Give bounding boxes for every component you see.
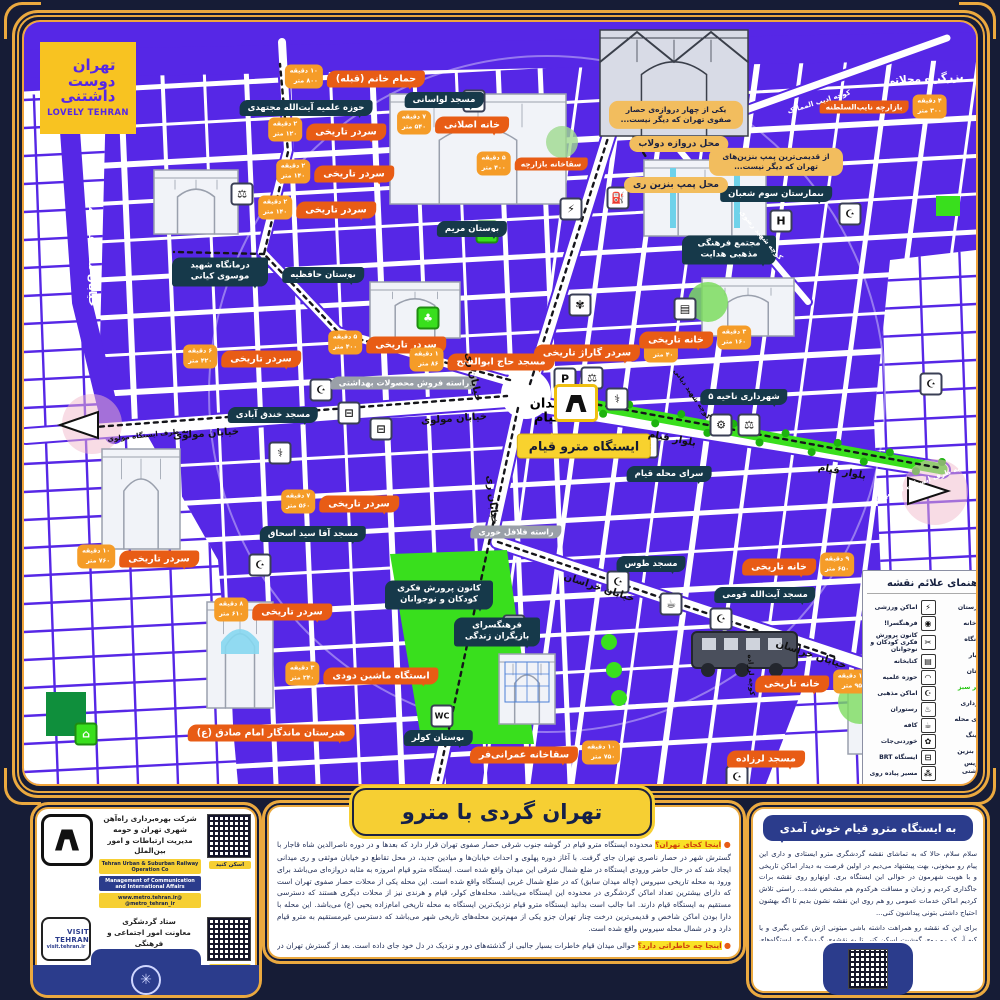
legend-label: اماکن مذهبی — [877, 690, 917, 697]
legend-item: ♨رستوران — [867, 702, 936, 717]
label-masjed-tus: مسجد طوس — [617, 556, 686, 572]
time-distance-chip: ۶ دقیقه۴۲۰ متر — [183, 345, 217, 369]
welcome-header: به ایستگاه مترو قیام خوش آمدی — [763, 815, 973, 841]
label-saqqakhane-bazaarche: سقاخانه بازارچه۵ دقیقه۴۰۰ متر — [515, 158, 588, 171]
walk-minutes: ۱۰ دقیقه — [587, 743, 615, 753]
label-masjed-lorzadeh: مسجد لرزاده — [727, 751, 805, 768]
walk-meters: ۴۲۰ متر — [188, 356, 212, 366]
legend-item: ✿خوردنی‌جات — [867, 734, 936, 749]
walk-minutes: ۱۰ دقیقه — [290, 67, 318, 77]
tourism-hq: ستاد گردشگری — [97, 917, 201, 928]
welcome-paragraph-2: برای این که نقشه رو همراهت داشته باشی می… — [759, 923, 977, 941]
neighborhood-house-icon: ✾ — [569, 294, 592, 317]
walk-minutes: ۳ دقیقه — [290, 664, 314, 674]
frame-corner-ornament — [4, 2, 41, 39]
legend-label: رستوران — [890, 706, 917, 713]
label-bustan-hafezieh: بوستان حافظیه — [282, 267, 364, 283]
label-bazaarche-nayeb: بازارچه نایب‌السلطنه۴ دقیقه۳۰۰ متر — [820, 101, 909, 114]
cafe-icon: ☕ — [660, 593, 683, 616]
logo-farsi: تهراندوستداشتنی — [60, 58, 115, 105]
label-khane-aslani: خانه اصلانی۷ دقیقه۵۴۰ متر — [435, 117, 509, 134]
legend-item: ⚖تره بار — [939, 648, 979, 663]
walk-meters: ۴۰ متر — [649, 350, 673, 360]
time-distance-chip: ۸ دقیقه۶۱۰ متر — [214, 598, 248, 622]
walk-minutes: ۸ دقیقه — [219, 600, 243, 610]
time-distance-chip: ۲ دقیقه۱۲۰ متر — [268, 118, 302, 142]
legend-item: ♣بوستان — [939, 664, 979, 679]
walk-minutes: ۱۰ دقیقه — [82, 547, 110, 557]
legend-item: ♣مسیر سبز — [939, 680, 979, 695]
library-icon: ▤ — [921, 654, 936, 669]
label-sardar-tarikhi-1: سردر تاریخی۲ دقیقه۱۲۰ متر — [306, 124, 386, 141]
walk-minutes: ۲ دقیقه — [273, 120, 297, 130]
eatables-icon: ✿ — [921, 734, 936, 749]
legend-item: +درمانگاه — [939, 632, 979, 647]
mosque-icon: ☪ — [920, 373, 943, 396]
walk-minutes: ۱ دقیقه — [414, 350, 438, 360]
legend-label: خوردنی‌جات — [881, 738, 918, 745]
qr-tab — [823, 943, 913, 995]
article-paragraph-2: ● اینجا چه خاطراتی دارد؟ حوالی میدان قیا… — [277, 940, 731, 953]
municipality-icon: ⚙ — [710, 414, 733, 437]
tehran-metro-logo — [41, 814, 93, 866]
mosque-icon: ☪ — [839, 203, 862, 226]
time-distance-chip: ۱۰ دقیقه۷۶۰ متر — [77, 545, 115, 569]
legend-label: اماکن ورزشی — [875, 604, 918, 611]
street-mostafa-khomeini: خیابان مصطفی خمینی — [86, 187, 98, 306]
walk-meters: ۵۴۰ متر — [402, 122, 426, 132]
label-pomp-benzin-note: از قدیمی‌ترین پمپ بنزین‌های تهران که دیگ… — [709, 148, 843, 176]
label-masjed-lavasani: مسجد لواسانی — [405, 92, 484, 108]
sports-icon: ⚡ — [921, 600, 936, 615]
legend-label: کافه — [904, 722, 918, 729]
label-raste-falafel: راسته فلافل خوری — [470, 526, 561, 539]
label-saraye-mahalle-qiam: سرای محله قیام — [627, 466, 712, 482]
time-distance-chip: ۱۰ دقیقه۷۵۰ متر — [582, 741, 620, 765]
legend-label: شهرداری — [960, 700, 978, 707]
market-icon: ⚖ — [738, 414, 761, 437]
article-paragraph-1: ● اینجا کجای تهران؟ محدوده ایستگاه مترو … — [277, 839, 731, 935]
legend-item: ✂کانون پرورش فکری کودکان و نوجوانان — [867, 632, 936, 653]
legend-item: Hبیمارستان — [939, 600, 979, 615]
mosque-icon: ☪ — [710, 608, 733, 631]
brt-icon: ⊟ — [370, 418, 393, 441]
tourism-deputy: معاونت امور اجتماعی و فرهنگی — [97, 928, 201, 950]
legend-item: ⊟ایستگاه BRT — [867, 750, 936, 765]
label-honarestan-emam-sadegh: هنرستان ماندگار امام صادق (ع) — [188, 725, 355, 742]
logo-english: LOVELY TEHRAN — [47, 108, 129, 118]
market-icon: ⚖ — [231, 183, 254, 206]
walk-meters: ۶۱۰ متر — [219, 609, 243, 619]
cultural-center-icon: ◉ — [921, 616, 936, 631]
metro-handles: @www.metro.tehran.ir @metro_tehran_ir — [99, 893, 201, 908]
time-distance-chip: ۷ دقیقه۵۶۰ متر — [281, 490, 315, 514]
legend-label: داروخانه — [963, 620, 978, 627]
map-legend: راهنمای علائم نقشه Hبیمارستان⚕داروخانه+د… — [862, 570, 978, 786]
metro-logo-glyph — [52, 825, 82, 855]
label-bimarestan-sevom-shaban: بیمارستان سوم شعبان — [720, 186, 832, 202]
legend-label: درمانگاه — [964, 636, 978, 643]
library-icon: ▤ — [674, 298, 697, 321]
legend-item: ◠حوزه علمیه — [867, 670, 936, 685]
time-distance-chip: ۵ دقیقه۴۰۰ متر — [476, 152, 510, 176]
welcome-panel: به ایستگاه مترو قیام خوش آمدی سلام سلام،… — [746, 802, 990, 998]
time-distance-chip: ۴ دقیقه۳۰۰ متر — [912, 95, 946, 119]
metro-company-dept: مدیریت ارتباطات و امور بین‌الملل — [99, 836, 201, 858]
legend-item: ⚙شهرداری — [939, 696, 979, 711]
mosque-icon: ☪ — [249, 554, 272, 577]
legend-item: ☕کافه — [867, 718, 936, 733]
cafe-icon: ☕ — [921, 718, 936, 733]
label-shahrdari-nahie-5: شهرداری ناحیه ۵ — [700, 389, 787, 405]
label-masjed-khandagh-abadi: مسجد خندق آبادی — [228, 407, 318, 423]
legend-column-right: Hبیمارستان⚕داروخانه+درمانگاه⚖تره بار♣بوس… — [939, 600, 979, 781]
mosque-icon: ☪ — [310, 379, 333, 402]
seminary-icon: ◠ — [921, 670, 936, 685]
label-khane-tarikhi-3: خانه تاریخی۱۳ دقیقه۹۵۰ متر — [755, 676, 829, 693]
label-darmangah-musavi-kiani: درمانگاه شهید موسوی کیانی — [172, 258, 268, 287]
walk-meters: ۷۵۰ متر — [587, 752, 615, 762]
walk-minutes: ۷ دقیقه — [402, 113, 426, 123]
pharmacy-icon: ⚕ — [606, 388, 629, 411]
welcome-paragraph-1: سلام سلام، حالا که به تماشای نقشه گردشگر… — [759, 849, 977, 919]
legend-item: ⚕داروخانه — [939, 616, 979, 631]
walk-minutes: ۶ دقیقه — [188, 347, 212, 357]
legend-item: ⁂مسیر پیاده روی — [867, 766, 936, 781]
lovely-tehran-logo: تهراندوستداشتنی LOVELY TEHRAN — [40, 42, 136, 134]
label-sardar-tarikhi-7: سردر تاریخی۱۰ دقیقه۷۶۰ متر — [119, 551, 199, 568]
time-distance-chip: ۲ دقیقه۱۴۰ متر — [258, 196, 292, 220]
qr-code-metro — [207, 814, 251, 858]
legend-item: ⛽پمپ بنزین — [939, 744, 979, 759]
legend-label: سرویس بهداشتی — [939, 760, 979, 774]
legend-label: کانون پرورش فکری کودکان و نوجوانان — [867, 632, 918, 653]
restaurant-icon: ♨ — [921, 702, 936, 717]
time-distance-chip: ۱۰ دقیقه۸۰۰ متر — [285, 65, 323, 89]
article-heading-1: اینجا کجای تهران؟ — [655, 840, 721, 849]
label-masjed-ayatollah-qomi: مسجد آیت‌الله قومی — [714, 587, 815, 603]
metro-dept-en: Management of Communication and Internat… — [99, 876, 201, 891]
label-sardar-tarikhi-8: سردر تاریخی۸ دقیقه۶۱۰ متر — [252, 604, 332, 621]
label-sardar-tarikhi-2: سردر تاریخی۲ دقیقه۱۴۰ متر — [314, 166, 394, 183]
religious-places-icon: ☪ — [921, 686, 936, 701]
legend-label: مسیر سبز — [958, 684, 978, 691]
metro-company-en: Tehran Urban & Suburban Railway Operatio… — [99, 859, 201, 874]
frame-corner-ornament — [4, 768, 41, 805]
legend-label: بیمارستان — [958, 604, 978, 611]
legend-item: ▤کتابخانه — [867, 654, 936, 669]
time-distance-chip: ۷ دقیقه۵۴۰ متر — [397, 111, 431, 135]
walk-meters: ۱۶۰ متر — [722, 337, 746, 347]
bullet-icon: ● — [724, 840, 731, 849]
walk-meters: ۱۲۰ متر — [273, 129, 297, 139]
label-farhangsara-bazigaran: فرهنگسرای بازیگران زندگی — [454, 618, 540, 647]
kanun-icon: ✂ — [921, 635, 936, 650]
label-kanun-parvaresh: کانون پرورش فکری کودکان و نوجوانان — [385, 581, 493, 610]
legend-item: ☪اماکن مذهبی — [867, 686, 936, 701]
home-icon: ⌂ — [75, 723, 98, 746]
label-howzeh-mojtahedi: حوزه علمیه آیت‌الله مجتهدی — [240, 100, 373, 116]
label-raste-behdashti: راسته فروش محصولات بهداشتی — [331, 377, 477, 390]
legend-item: ✾سرای محله — [939, 712, 979, 727]
label-darvaze-doolab-note: یکی از چهار دروازه‌ی حصار صفوی تهران که … — [609, 101, 743, 129]
legend-column-left: ⚡اماکن ورزشی◉فرهنگسرا!✂کانون پرورش فکری … — [867, 600, 936, 781]
label-metro-station: ایستگاه مترو قیام — [517, 434, 651, 459]
legend-label: مسیر پیاده روی — [870, 770, 918, 777]
walk-minutes: ۳ دقیقه — [722, 328, 746, 338]
time-distance-chip: ۳ دقیقه۲۴۰ متر — [285, 662, 319, 686]
legend-label: ایستگاه BRT — [879, 754, 917, 761]
walk-meters: ۵۶۰ متر — [286, 501, 310, 511]
visit-tehran-logo: VISIT TEHRAN visit.tehran.ir — [41, 917, 91, 961]
tehran-municipality-emblem: ✳ — [131, 965, 161, 995]
park-icon: ♣ — [417, 307, 440, 330]
hospital-icon: H — [770, 210, 793, 233]
label-bustan-kooler: بوستان کولر — [404, 730, 473, 746]
time-distance-chip: ۲ دقیقه۱۴۰ متر — [276, 160, 310, 184]
walk-minutes: ۹ دقیقه — [825, 555, 849, 565]
label-khane-tarikhi-1: خانه تاریخی۳ دقیقه۱۶۰ متر — [639, 332, 713, 349]
visit-tehran-wordmark: VISIT TEHRAN — [43, 928, 89, 944]
qr-code-visit-tehran — [207, 917, 251, 961]
welcome-body: سلام سلام، حالا که به تماشای نقشه گردشگر… — [759, 849, 977, 941]
walk-minutes: ۴ دقیقه — [917, 97, 941, 107]
legend-item: WCسرویس بهداشتی — [939, 760, 979, 775]
municipality-band: ✳ — [33, 965, 259, 995]
label-bustan-maryam: بوستان مریم — [437, 221, 507, 237]
lovely-tehran-map-poster: حمام خانم (قبله)۱۰ دقیقه۸۰۰ مترسردر تاری… — [0, 0, 1000, 1000]
article-heading-2: اینجا چه خاطراتی دارد؟ — [638, 941, 722, 950]
frame-corner-ornament — [959, 2, 996, 39]
legend-title: راهنمای علائم نقشه — [867, 578, 978, 594]
pharmacy-icon: ⚕ — [269, 442, 292, 465]
scan-label: اسکن کنید — [209, 861, 251, 869]
brt-icon: ⊟ — [338, 402, 361, 425]
metro-company-name: شرکت بهره‌برداری راه‌آهن شهری تهران و حو… — [99, 814, 201, 836]
bullet-icon: ● — [724, 941, 731, 950]
walk-minutes: ۲ دقیقه — [281, 162, 305, 172]
walking-route-icon: ⁂ — [921, 766, 936, 781]
label-istgah-mashin-doodi: ایستگاه ماشین دودی۳ دقیقه۲۴۰ متر — [323, 668, 438, 685]
wc-icon: WC — [431, 705, 454, 728]
walk-meters: ۸۶ متر — [414, 359, 438, 369]
walk-meters: ۸۰۰ متر — [290, 76, 318, 86]
metro-logo-glyph — [563, 393, 589, 413]
article-text-1: محدوده ایستگاه مترو قیام در گوشه جنوب شر… — [277, 840, 731, 933]
metro-company-panel: اسکن کنید شرکت بهره‌برداری راه‌آهن شهری … — [30, 802, 262, 998]
label-sardar-garage: سردر گاراژ تاریخی۱ دقیقه۴۰ متر — [534, 345, 640, 362]
walk-meters: ۱۴۰ متر — [263, 207, 287, 217]
walk-meters: ۳۰۰ متر — [917, 106, 941, 116]
legend-label: کتابخانه — [894, 658, 918, 665]
walk-minutes: ۷ دقیقه — [286, 492, 310, 502]
label-masjed-agha-seyed-eshagh: مسجد آقا سید اسحاق — [260, 526, 366, 542]
time-distance-chip: ۳ دقیقه۱۶۰ متر — [717, 326, 751, 350]
legend-item: Pپارکینگ — [939, 728, 979, 743]
walk-meters: ۲۴۰ متر — [290, 673, 314, 683]
time-distance-chip: ۵ دقیقه۴۰۰ متر — [328, 331, 362, 355]
label-saqqakhane-omranifar: سقاخانه عمرانی‌فر۱۰ دقیقه۷۵۰ متر — [470, 747, 578, 764]
label-sardar-tarikhi-4: سردر تاریخی۶ دقیقه۴۲۰ متر — [221, 351, 301, 368]
walk-minutes: ۲ دقیقه — [263, 198, 287, 208]
walk-meters: ۶۵۰ متر — [825, 564, 849, 574]
sports-icon: ⚡ — [560, 198, 583, 221]
legend-item: ⚡اماکن ورزشی — [867, 600, 936, 615]
visit-tehran-url: visit.tehran.ir — [47, 944, 86, 950]
walk-meters: ۴۰۰ متر — [333, 342, 357, 352]
label-khane-tarikhi-2: خانه تاریخی۹ دقیقه۶۵۰ متر — [742, 559, 816, 576]
label-hammam-khanum: حمام خانم (قبله)۱۰ دقیقه۸۰۰ متر — [327, 71, 425, 88]
time-distance-chip: ۹ دقیقه۶۵۰ متر — [820, 553, 854, 577]
legend-label: فرهنگسرا! — [884, 620, 917, 627]
legend-label: حوزه علمیه — [883, 674, 918, 681]
time-distance-chip: ۱ دقیقه۸۶ متر — [409, 348, 443, 372]
mosque-icon: ☪ — [726, 766, 749, 787]
legend-label: سرای محله — [955, 716, 978, 723]
metro-station-icon — [554, 384, 598, 422]
qr-code-map — [848, 949, 888, 989]
legend-label: پمپ بنزین — [957, 748, 978, 755]
legend-item: ◉فرهنگسرا! — [867, 616, 936, 631]
label-sardar-tarikhi-3: سردر تاریخی۲ دقیقه۱۴۰ متر — [296, 202, 376, 219]
poster-title: تهران گردی با مترو — [352, 788, 652, 836]
walk-meters: ۷۶۰ متر — [82, 556, 110, 566]
walk-minutes: ۵ دقیقه — [481, 154, 505, 164]
brt-station-icon: ⊟ — [921, 750, 936, 765]
label-mahal-pomp-benzin-rey: محل پمپ بنزین ری — [624, 177, 728, 193]
walk-minutes: ۵ دقیقه — [333, 333, 357, 343]
walk-meters: ۱۴۰ متر — [281, 171, 305, 181]
label-sardar-tarikhi-6: سردر تاریخی۷ دقیقه۵۶۰ متر — [319, 496, 399, 513]
walk-meters: ۴۰۰ متر — [481, 163, 505, 173]
